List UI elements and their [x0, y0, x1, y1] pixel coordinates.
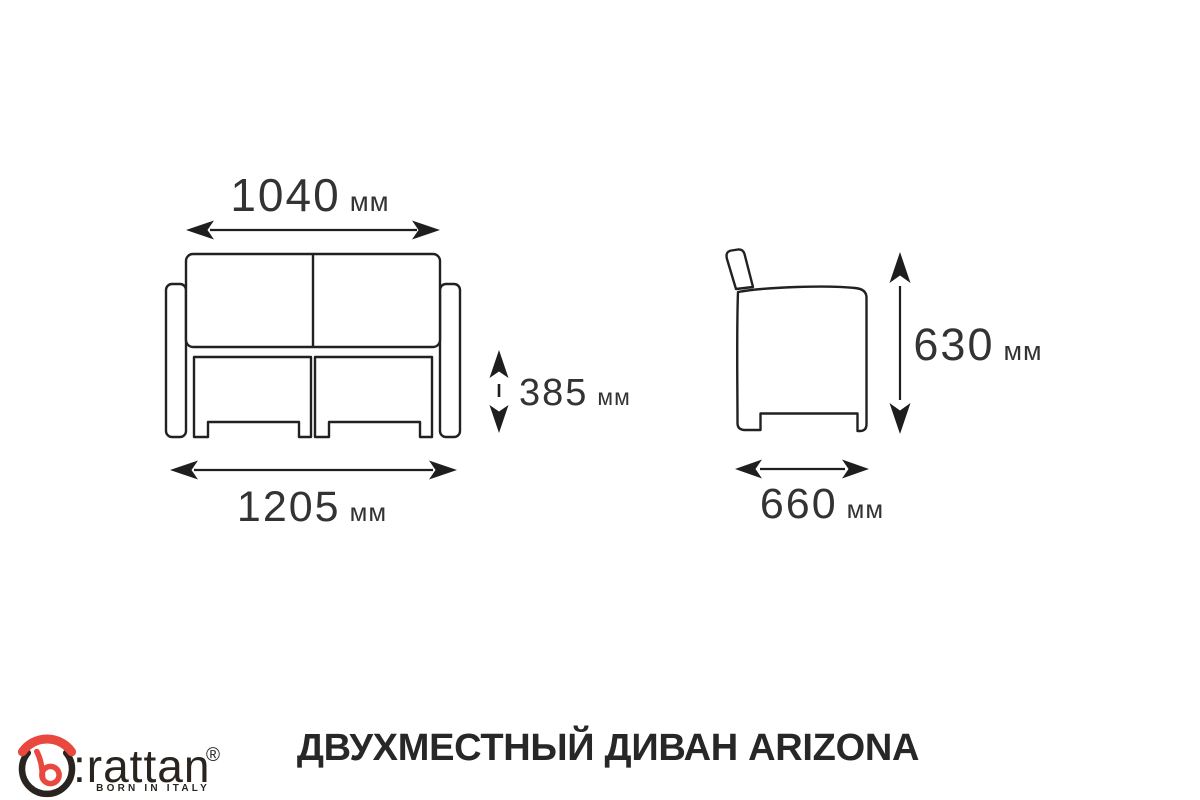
dimension-label-side-height: 630мм — [913, 322, 1042, 367]
arrowhead-up-icon — [890, 252, 911, 283]
front-armrest-right — [440, 284, 460, 437]
brand-tagline: BORN IN ITALY — [96, 783, 210, 794]
arrowhead-left-icon — [170, 461, 198, 480]
dimension-value: 385 — [519, 372, 588, 414]
side-backrest-tab — [727, 249, 753, 289]
dim-arrow-front-bottom-width — [170, 461, 457, 480]
dimension-value: 630 — [913, 319, 994, 370]
front-armrest-left — [166, 284, 186, 437]
front-base-left — [194, 357, 311, 437]
dimension-label-front-bottom-width: 1205мм — [237, 486, 387, 529]
arrowhead-up-icon — [490, 350, 509, 378]
product-title: ДВУХМЕСТНЫЙ ДИВАН ARIZONA — [297, 727, 919, 770]
dimension-value: 1205 — [237, 483, 341, 531]
logo-ring-icon — [22, 753, 72, 794]
dimension-unit: мм — [350, 186, 390, 217]
arrowhead-left-icon — [735, 460, 762, 479]
arrowhead-left-icon — [186, 221, 214, 240]
front-base-right — [315, 357, 432, 437]
dimension-unit: мм — [847, 496, 884, 524]
sofa-side-view — [727, 249, 867, 431]
logo-letter-b-icon — [37, 752, 59, 784]
logo-arc-icon — [22, 739, 71, 752]
arrowhead-right-icon — [842, 460, 869, 479]
arrowhead-down-icon — [890, 403, 911, 434]
logo-mark — [22, 739, 72, 794]
dimension-unit: мм — [1003, 336, 1042, 366]
side-body — [737, 287, 866, 431]
dim-arrow-front-top-width — [186, 221, 440, 240]
registered-mark: ® — [206, 745, 220, 766]
arrowhead-down-icon — [490, 405, 509, 433]
dimension-value: 660 — [760, 480, 838, 528]
dimension-label-side-depth: 660мм — [760, 483, 884, 526]
dim-arrow-side-depth — [735, 460, 869, 479]
dimension-unit: мм — [597, 384, 630, 410]
sofa-front-view — [166, 254, 460, 437]
dimension-label-front-top-width: 1040мм — [230, 172, 389, 218]
brand-logo: :rattan ® BORN IN ITALY — [14, 733, 244, 800]
dimension-diagram-page: 1040мм 385мм 1205мм 630мм 660мм ДВУХМЕСТ… — [0, 0, 1200, 800]
dimension-unit: мм — [350, 499, 387, 527]
dim-arrow-seat-height — [490, 350, 509, 433]
dimension-value: 1040 — [230, 169, 340, 221]
dim-arrow-side-height — [890, 252, 911, 434]
arrowhead-right-icon — [429, 461, 457, 480]
dimension-label-seat-height: 385мм — [519, 374, 631, 412]
